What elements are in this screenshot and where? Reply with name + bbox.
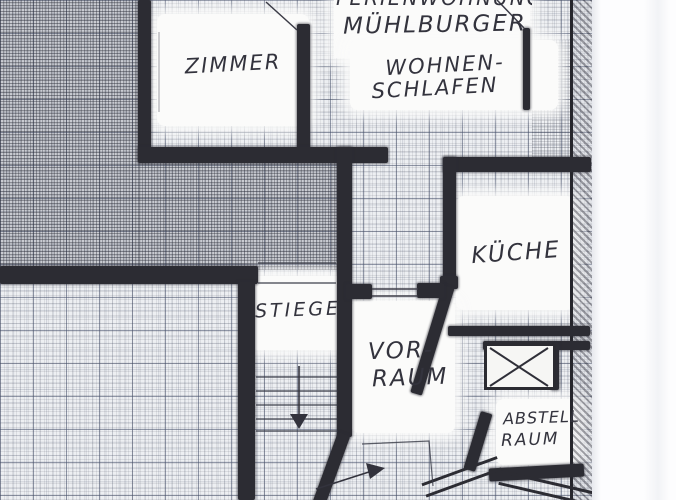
- scanned-floorplan: FERIENWOHNUNG MÜHLBURGER ZIMMER WOHNEN- …: [0, 0, 676, 500]
- graph-paper: FERIENWOHNUNG MÜHLBURGER ZIMMER WOHNEN- …: [0, 0, 597, 500]
- room-vorraum-label-line1: VOR-: [368, 337, 435, 365]
- room-abstell-label-line1: ABSTELL: [503, 407, 580, 429]
- zimmer-door-swing-line: [266, 2, 297, 30]
- room-abstell-label-line2: RAUM: [501, 429, 560, 451]
- plan-title-line1: FERIENWOHNUNG: [336, 0, 532, 10]
- stair-treads: [256, 263, 338, 431]
- room-vorraum-label-line2: RAUM: [372, 364, 449, 393]
- room-stiege-label: STIEGE: [252, 297, 345, 322]
- entrance-arrow-icon: [316, 463, 385, 489]
- page-margin: [592, 0, 676, 500]
- shaft-cross-icon: [490, 348, 548, 386]
- entry-guide-lines: [362, 441, 433, 486]
- plan-title-line2: MÜHLBURGER: [340, 10, 530, 39]
